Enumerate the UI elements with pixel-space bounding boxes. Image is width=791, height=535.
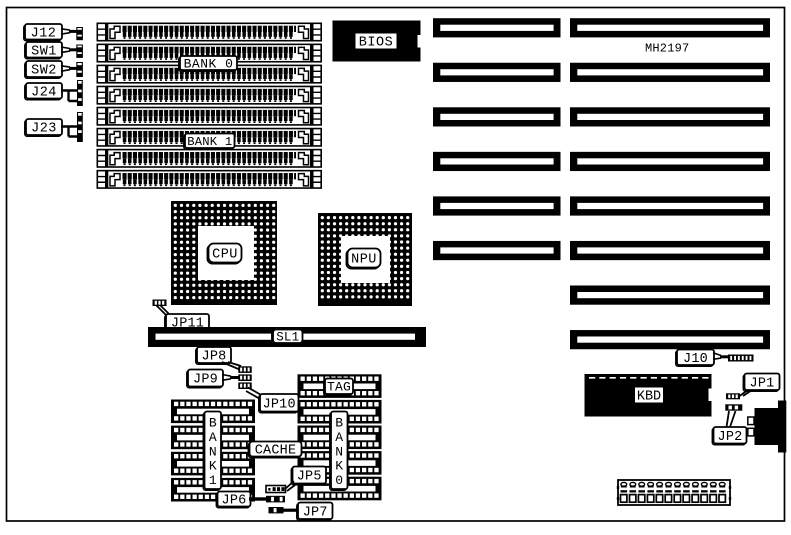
svg-text:CACHE: CACHE — [255, 444, 297, 459]
svg-text:N: N — [335, 444, 343, 459]
svg-text:K: K — [335, 459, 343, 474]
svg-text:JP6: JP6 — [222, 494, 247, 509]
svg-text:TAG: TAG — [327, 380, 351, 395]
svg-text:KBD: KBD — [637, 390, 661, 405]
svg-text:JP9: JP9 — [193, 373, 218, 388]
svg-text:0: 0 — [335, 473, 343, 488]
svg-text:J24: J24 — [31, 85, 57, 100]
svg-text:J12: J12 — [31, 26, 57, 41]
svg-text:SW2: SW2 — [31, 64, 57, 79]
svg-text:BIOS: BIOS — [359, 36, 393, 51]
svg-text:B: B — [335, 416, 343, 431]
svg-text:NPU: NPU — [351, 253, 377, 268]
svg-text:1: 1 — [209, 473, 217, 488]
svg-text:JP5: JP5 — [297, 470, 322, 485]
svg-text:JP1: JP1 — [750, 376, 775, 391]
svg-text:BANK 0: BANK 0 — [184, 57, 234, 72]
svg-text:BANK 1: BANK 1 — [187, 135, 232, 149]
svg-text:J23: J23 — [31, 122, 57, 137]
svg-text:A: A — [209, 430, 217, 445]
svg-text:B: B — [209, 416, 217, 431]
svg-text:JP7: JP7 — [303, 505, 328, 520]
svg-text:SL1: SL1 — [276, 331, 299, 345]
svg-text:A: A — [335, 430, 343, 445]
svg-text:JP2: JP2 — [718, 430, 743, 445]
svg-text:K: K — [209, 459, 217, 474]
svg-text:N: N — [209, 444, 217, 459]
svg-text:JP10: JP10 — [263, 397, 296, 412]
svg-text:CPU: CPU — [212, 248, 238, 263]
svg-text:MH2197: MH2197 — [645, 42, 689, 56]
svg-text:SW1: SW1 — [31, 44, 57, 59]
svg-text:J10: J10 — [683, 352, 708, 367]
